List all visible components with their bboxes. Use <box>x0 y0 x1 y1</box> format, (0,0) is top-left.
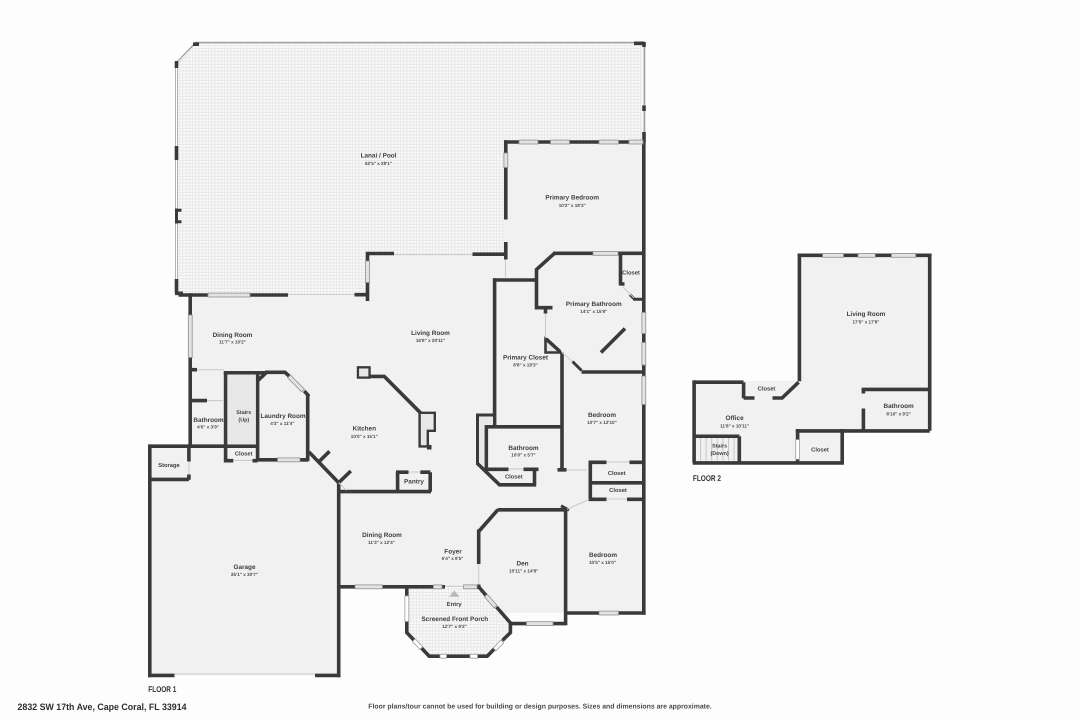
svg-text:Lanai / Pool: Lanai / Pool <box>361 153 397 160</box>
svg-text:12'7" x 9'2": 12'7" x 9'2" <box>442 624 466 629</box>
svg-text:Living Room: Living Room <box>847 311 886 318</box>
svg-text:Garage: Garage <box>233 564 255 571</box>
svg-text:Screened Front Porch: Screened Front Porch <box>421 616 488 623</box>
svg-text:Closet: Closet <box>505 474 523 481</box>
svg-text:Primary Closet: Primary Closet <box>503 355 549 362</box>
svg-text:(Up): (Up) <box>238 417 249 423</box>
svg-text:FLOOR 1: FLOOR 1 <box>148 684 176 694</box>
svg-text:Floor plans/tour cannot be use: Floor plans/tour cannot be used for buil… <box>368 703 712 710</box>
svg-text:(Down): (Down) <box>710 451 728 457</box>
svg-text:Kitchen: Kitchen <box>353 426 377 433</box>
svg-text:FLOOR 2: FLOOR 2 <box>693 473 721 483</box>
svg-text:Storage: Storage <box>158 462 180 469</box>
svg-text:Bathroom: Bathroom <box>884 403 914 410</box>
svg-text:4'6" x 3'9": 4'6" x 3'9" <box>197 425 219 430</box>
svg-text:Bedroom: Bedroom <box>588 412 616 419</box>
svg-text:Closet: Closet <box>235 451 253 458</box>
svg-text:10'11" x 14'9": 10'11" x 14'9" <box>509 568 538 573</box>
svg-text:Office: Office <box>726 415 745 422</box>
svg-text:Bathroom: Bathroom <box>193 417 223 424</box>
svg-text:Bathroom: Bathroom <box>508 445 538 452</box>
svg-text:Entry: Entry <box>447 602 463 608</box>
svg-text:Stairs: Stairs <box>712 444 727 450</box>
svg-text:6'4" x 8'5": 6'4" x 8'5" <box>442 556 464 561</box>
svg-text:11'7" x 10'2": 11'7" x 10'2" <box>219 340 246 345</box>
svg-text:10'7" x 12'10": 10'7" x 12'10" <box>587 420 617 425</box>
svg-text:Dining Room: Dining Room <box>213 332 253 339</box>
svg-text:Closet: Closet <box>608 470 626 477</box>
svg-text:Closet: Closet <box>811 447 829 454</box>
svg-text:Stairs: Stairs <box>236 410 251 416</box>
svg-text:17'5" x 17'8": 17'5" x 17'8" <box>853 319 880 324</box>
svg-text:Foyer: Foyer <box>444 548 462 555</box>
svg-text:Den: Den <box>516 560 528 567</box>
svg-text:Closet: Closet <box>609 487 627 494</box>
svg-text:25'1" x 30'7": 25'1" x 30'7" <box>231 572 258 577</box>
svg-text:Pantry: Pantry <box>404 479 424 486</box>
svg-text:10'5" x 15'0": 10'5" x 15'0" <box>589 560 616 565</box>
svg-text:Bedroom: Bedroom <box>589 552 617 559</box>
svg-text:10'0" x 5'7": 10'0" x 5'7" <box>511 453 535 458</box>
svg-text:14'1" x 15'8": 14'1" x 15'8" <box>580 309 607 314</box>
svg-text:Closet: Closet <box>622 270 640 277</box>
svg-text:Laundry Room: Laundry Room <box>260 413 305 420</box>
svg-text:4'3" x 11'4": 4'3" x 11'4" <box>270 421 294 426</box>
svg-text:Closet: Closet <box>758 386 776 393</box>
svg-text:62'5" x 28'1": 62'5" x 28'1" <box>365 161 392 166</box>
svg-text:Living Room: Living Room <box>411 330 450 337</box>
svg-text:2832 SW 17th Ave, Cape Coral,: 2832 SW 17th Ave, Cape Coral, FL 33914 <box>18 702 188 712</box>
svg-text:11'8" x 10'11": 11'8" x 10'11" <box>720 423 749 428</box>
svg-text:16'8" x 20'11": 16'8" x 20'11" <box>416 338 445 343</box>
svg-text:11'3" x 12'4": 11'3" x 12'4" <box>368 540 395 545</box>
svg-text:Primary Bedroom: Primary Bedroom <box>545 195 599 202</box>
svg-text:Primary Bathroom: Primary Bathroom <box>566 301 622 308</box>
svg-text:10'0" x 15'1": 10'0" x 15'1" <box>351 434 378 439</box>
svg-text:Dining Room: Dining Room <box>362 532 402 539</box>
svg-text:8'10" x 9'2": 8'10" x 9'2" <box>886 411 910 416</box>
svg-text:10'2" x 18'3": 10'2" x 18'3" <box>559 203 586 208</box>
svg-text:8'8" x 19'3": 8'8" x 19'3" <box>513 363 537 368</box>
